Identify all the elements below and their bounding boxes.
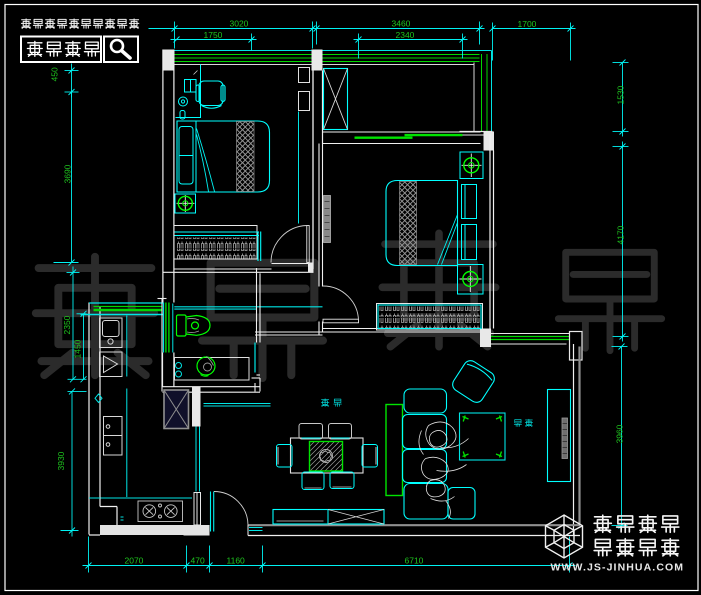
- svg-text:3690: 3690: [63, 164, 73, 183]
- svg-text:1750: 1750: [204, 30, 223, 40]
- svg-text:1530: 1530: [616, 85, 626, 104]
- svg-text:1700: 1700: [518, 19, 537, 29]
- svg-text:3960: 3960: [615, 424, 625, 443]
- svg-text:3020: 3020: [230, 19, 249, 29]
- svg-text:2070: 2070: [125, 556, 144, 566]
- svg-text:2350: 2350: [62, 315, 72, 334]
- svg-text:1450: 1450: [73, 339, 83, 358]
- svg-text:3460: 3460: [392, 19, 411, 29]
- svg-text:WWW.JS-JINHUA.COM: WWW.JS-JINHUA.COM: [551, 562, 685, 574]
- svg-text:450: 450: [50, 67, 60, 81]
- svg-text:470: 470: [191, 556, 205, 566]
- svg-text:3930: 3930: [56, 451, 66, 470]
- svg-text:2340: 2340: [396, 30, 415, 40]
- svg-text:6710: 6710: [405, 556, 424, 566]
- svg-text:4170: 4170: [616, 225, 626, 244]
- svg-text:1160: 1160: [227, 556, 246, 566]
